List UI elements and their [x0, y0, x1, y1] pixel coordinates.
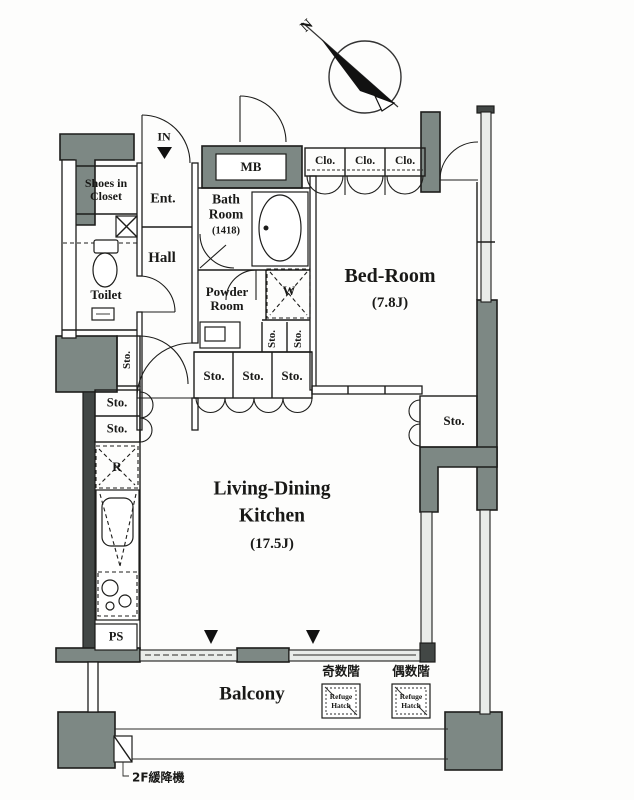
kitchen-west-wall [83, 392, 95, 654]
ldk-size-label: (17.5J) [250, 536, 294, 552]
compass-rose [303, 23, 401, 113]
closet-label-1: Clo. [315, 155, 335, 167]
entrance-in-label: IN [157, 131, 170, 144]
pillar-right-middle [477, 300, 497, 510]
balcony-west-wall [88, 662, 98, 712]
storage-label-row-2: Sto. [242, 369, 263, 383]
pillar-top-right [421, 112, 440, 192]
bath-size-label: (1418) [212, 225, 240, 236]
powder-room-label: Powder Room [194, 285, 260, 313]
pillar-bottom-right [445, 712, 502, 770]
entrance-label: Ent. [150, 191, 175, 206]
bedroom-size-label: (7.8J) [372, 295, 408, 311]
shoes-closet-label: Shoes in Closet [78, 177, 134, 203]
washer-label: W [283, 284, 296, 298]
bottom-wall-middle [237, 648, 289, 662]
ldk-east-window [421, 512, 432, 643]
meter-box-label: MB [241, 160, 262, 174]
even-floors-label: 偶数階 [392, 664, 430, 678]
storage-label-mid-b: Sto. [293, 330, 305, 348]
west-wall-upper [62, 160, 76, 338]
bathtub [252, 192, 308, 266]
bath-room-label: Bath Room [195, 192, 257, 221]
fixtures [92, 147, 430, 776]
storage-label-mid-a: Sto. [267, 330, 279, 348]
balcony-label: Balcony [219, 685, 284, 706]
bedroom-south-wall [312, 386, 422, 394]
closet-label-2: Clo. [355, 155, 375, 167]
storage-label-row-1: Sto. [203, 369, 224, 383]
toilet-label: Toilet [90, 288, 121, 302]
ldk-label-line1: Living-Dining [213, 478, 330, 499]
storage-label-left-1: Sto. [107, 396, 128, 410]
refuge-hatch-label-even: Refuge Hatch [393, 692, 429, 710]
hall-ldk-door-arc [137, 343, 192, 398]
powder-vanity [200, 322, 240, 348]
closet-label-3: Clo. [395, 155, 415, 167]
floor-plan: N IN Shoes in Closet Ent. Hall Toilet MB… [0, 0, 634, 800]
ldk-south-window-1 [140, 650, 237, 661]
bedroom-east-window [481, 112, 491, 302]
floor-plan-drawing [0, 0, 634, 800]
right-railing [480, 510, 490, 714]
shoes-closet-hatch [116, 216, 137, 237]
window-marker-2 [306, 630, 320, 644]
bedroom-door-arc [440, 142, 478, 180]
bedroom-west-wall [310, 176, 316, 390]
pillar-bottom-left [58, 712, 115, 768]
storage-label-right: Sto. [443, 414, 464, 428]
storage-label-row-3: Sto. [281, 369, 302, 383]
bedroom-label: Bed-Room [344, 266, 435, 288]
escape-device [114, 736, 132, 776]
hall-label: Hall [148, 250, 176, 266]
odd-floors-label: 奇数階 [322, 664, 360, 678]
toilet-door-arc [139, 276, 175, 312]
storage-label-left-tall: Sto. [122, 351, 134, 369]
ldk-south-window-2 [289, 650, 420, 661]
in-arrow [157, 147, 172, 159]
toilet-fixture [92, 240, 118, 320]
pillar-left-middle [56, 336, 117, 392]
escape-device-label: 2F緩降機 [132, 772, 185, 785]
storage-left-door-arc [140, 336, 188, 384]
refrigerator-label: R [112, 460, 121, 474]
meter-box-door-arc [240, 96, 286, 142]
storage-label-left-2: Sto. [107, 422, 128, 436]
refuge-hatch-label-odd: Refuge Hatch [323, 692, 359, 710]
hall-west-wall-a [137, 163, 142, 276]
pipe-space-label: PS [109, 630, 124, 644]
kitchen-sink-counter [96, 490, 139, 620]
window-marker-1 [204, 630, 218, 644]
ldk-label-line2: Kitchen [239, 505, 305, 526]
hall-east-wall-a [192, 163, 198, 343]
cap-ldk-corner [420, 643, 435, 662]
